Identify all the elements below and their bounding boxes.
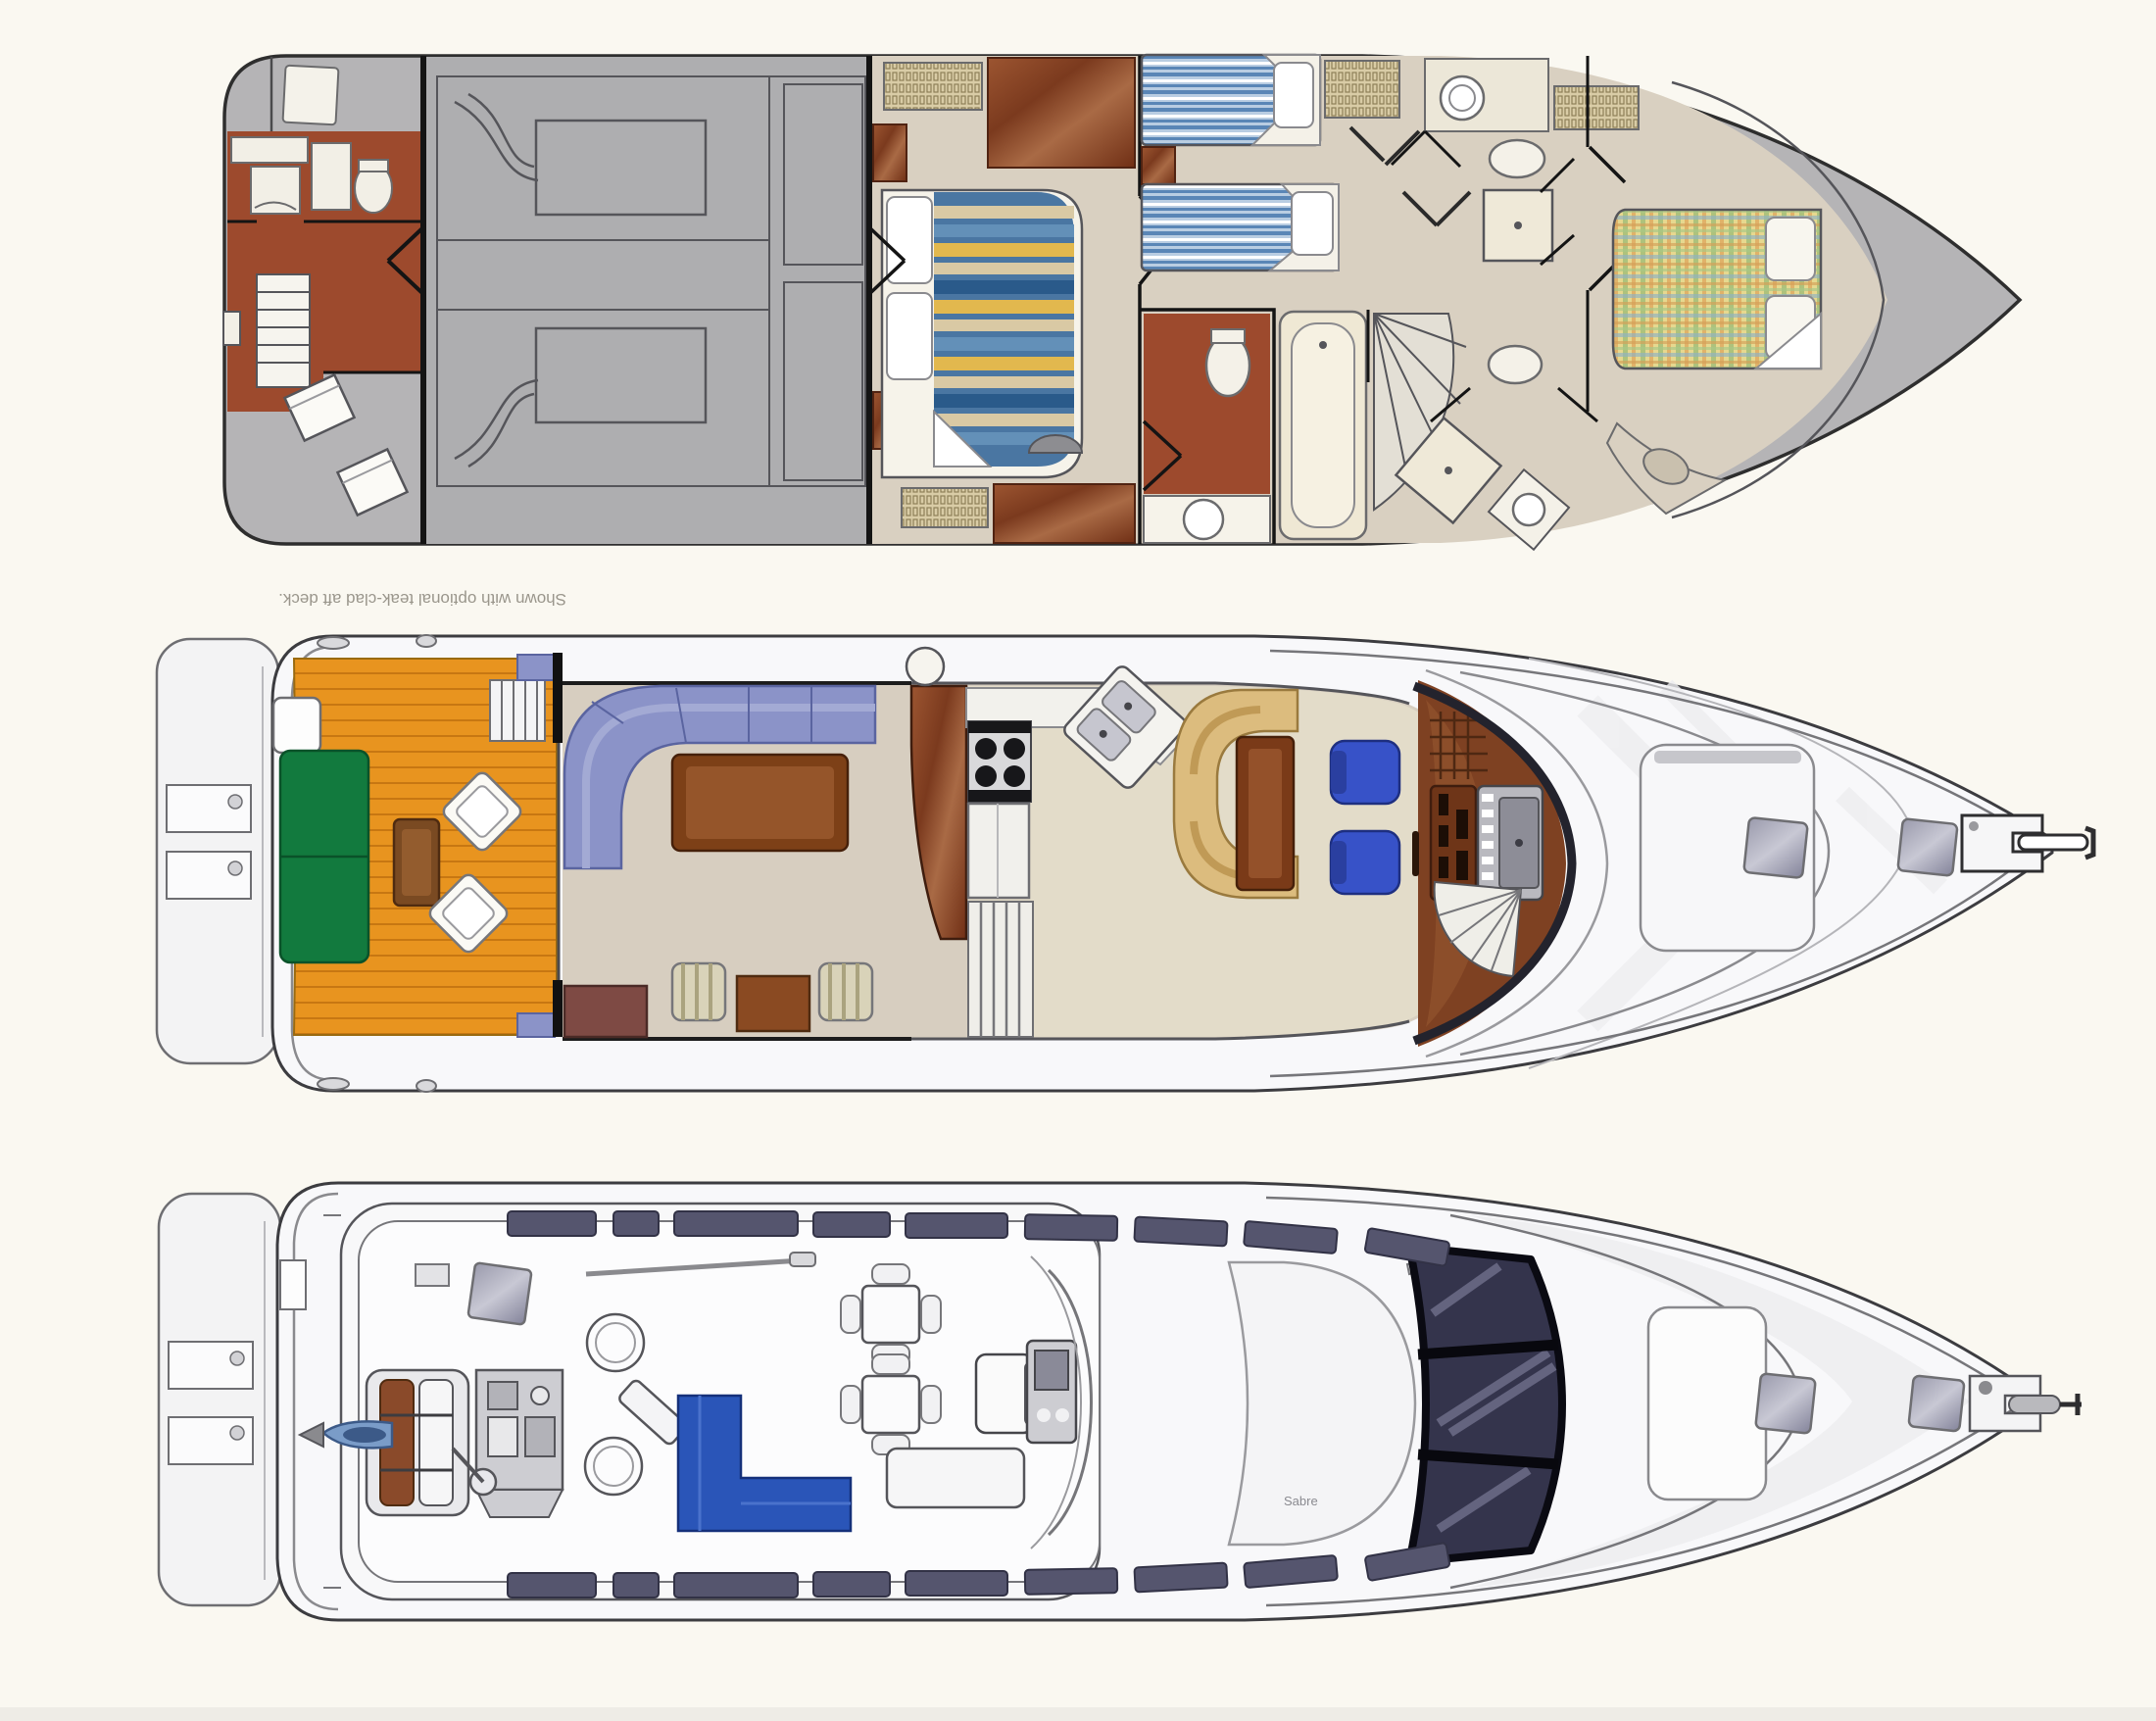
svg-text:Shown with optional teak-clad: Shown with optional teak-clad aft deck.: [278, 590, 566, 609]
svg-text:Sabre: Sabre: [1284, 1494, 1318, 1508]
